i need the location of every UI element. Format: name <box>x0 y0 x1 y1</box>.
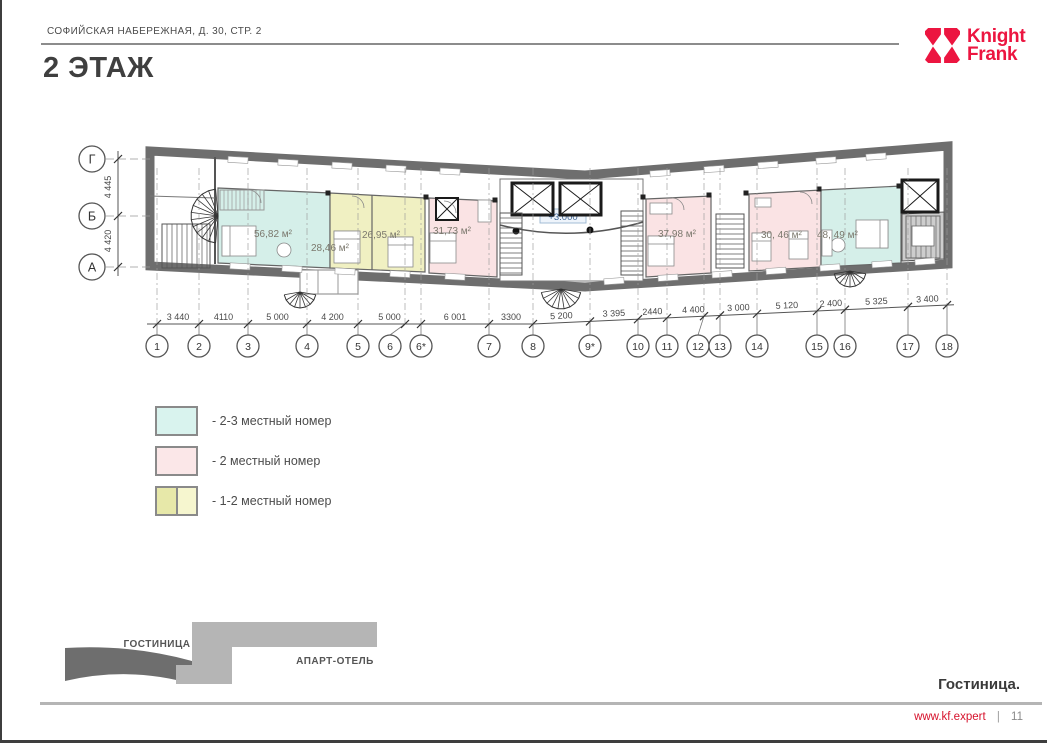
svg-text:17: 17 <box>902 341 914 353</box>
brochure-page: СОФИЙСКАЯ НАБЕРЕЖНАЯ, Д. 30, СТР. 2 2 ЭТ… <box>0 0 1047 743</box>
footer-website-link[interactable]: www.kf.expert <box>914 711 986 723</box>
svg-text:6: 6 <box>387 341 393 353</box>
dimension-label: 3 395 <box>602 308 625 319</box>
sitemap-apart-label: АПАРТ-ОТЕЛЬ <box>296 656 374 667</box>
dimension-label: 4 420 <box>103 230 113 253</box>
dimension-label: 3 000 <box>727 302 750 313</box>
dimension-label: 3 440 <box>167 312 190 322</box>
axis-bubble-13: 13 <box>709 335 731 357</box>
dimension-label: 5 200 <box>550 310 573 321</box>
axis-bubble-12: 12 <box>687 335 709 357</box>
legend-label-2-3: - 2-3 местный номер <box>212 414 331 428</box>
legend-swatch-2 <box>155 446 198 476</box>
svg-text:13: 13 <box>714 341 726 353</box>
axis-bubble-3: 3 <box>237 335 259 357</box>
axis-bubble-16: 16 <box>834 335 856 357</box>
axis-bubble-1: 1 <box>146 335 168 357</box>
svg-text:7: 7 <box>486 341 492 353</box>
svg-text:18: 18 <box>941 341 953 353</box>
axis-bubble-6*: 6* <box>410 335 432 357</box>
axis-bubble-Б: Б <box>79 203 105 229</box>
legend-swatch-2-3 <box>155 406 198 436</box>
footer-page-number: 11 <box>1011 711 1023 723</box>
svg-text:16: 16 <box>839 341 851 353</box>
axis-bubble-2: 2 <box>188 335 210 357</box>
room-area-label: 56,82 м² <box>254 229 293 240</box>
legend-item-1-2: - 1-2 местный номер <box>155 486 331 516</box>
room-area-label: 31,73 м² <box>433 226 472 237</box>
dimension-label: 4110 <box>214 312 233 322</box>
dimension-label: 4 400 <box>682 304 705 315</box>
page-caption: Гостиница. <box>938 676 1020 693</box>
svg-text:2: 2 <box>196 341 202 353</box>
footer-rule <box>40 702 1042 705</box>
axis-bubble-9*: 9* <box>579 335 601 357</box>
svg-text:5: 5 <box>355 341 361 353</box>
axis-bubble-Г: Г <box>79 146 105 172</box>
legend-item-2: - 2 местный номер <box>155 446 331 476</box>
legend: - 2-3 местный номер - 2 местный номер - … <box>155 406 331 526</box>
floor-plan: +3.000 1234566*789*1011121314151617183 4… <box>0 0 1047 743</box>
room-area-label: 26,95 м² <box>362 230 401 241</box>
dimension-label: 6 001 <box>444 312 467 322</box>
axis-bubble-10: 10 <box>627 335 649 357</box>
room-area-label: 48, 49 м² <box>817 230 858 241</box>
axis-bubble-А: А <box>79 254 105 280</box>
svg-text:Б: Б <box>88 210 96 224</box>
dimension-label: 5 120 <box>775 300 798 311</box>
svg-text:11: 11 <box>662 341 673 353</box>
svg-text:14: 14 <box>751 341 763 353</box>
axis-bubble-5: 5 <box>347 335 369 357</box>
footer-separator: | <box>997 711 1000 723</box>
dimension-label: 5 325 <box>865 296 888 307</box>
sitemap-hotel-shape <box>65 647 192 684</box>
svg-text:8: 8 <box>530 341 536 353</box>
svg-text:1: 1 <box>154 341 160 353</box>
axis-bubble-6: 6 <box>379 335 401 357</box>
svg-text:6*: 6* <box>416 341 426 353</box>
svg-text:12: 12 <box>692 341 704 353</box>
svg-text:3: 3 <box>245 341 251 353</box>
svg-text:4: 4 <box>304 341 310 353</box>
axis-bubble-4: 4 <box>296 335 318 357</box>
footer: www.kf.expert | 11 <box>914 711 1023 723</box>
axis-bubble-8: 8 <box>522 335 544 357</box>
axis-bubble-11: 11 <box>656 335 678 357</box>
dimension-label: 2440 <box>642 306 662 317</box>
axis-bubble-18: 18 <box>936 335 958 357</box>
legend-swatch-1-2 <box>155 486 198 516</box>
svg-text:10: 10 <box>632 341 644 353</box>
svg-text:Г: Г <box>89 153 96 167</box>
dimension-label: 3300 <box>501 312 521 322</box>
svg-text:9*: 9* <box>585 341 595 353</box>
legend-item-2-3: - 2-3 местный номер <box>155 406 331 436</box>
axis-bubble-14: 14 <box>746 335 768 357</box>
room-area-label: 28,46 м² <box>311 243 350 254</box>
dimension-label: 5 000 <box>378 312 401 322</box>
sitemap-hotel-label: ГОСТИНИЦА <box>123 639 190 650</box>
sitemap-apart-shape <box>176 622 377 684</box>
svg-text:А: А <box>88 261 97 275</box>
dimension-label: 4 200 <box>321 312 344 322</box>
dimension-label: 5 000 <box>266 312 289 322</box>
room-area-label: 37,98 м² <box>658 229 697 240</box>
svg-text:15: 15 <box>811 341 823 353</box>
dimension-label: 4 445 <box>103 176 113 199</box>
dimension-label: 3 400 <box>916 293 939 304</box>
legend-label-1-2: - 1-2 местный номер <box>212 494 331 508</box>
legend-label-2: - 2 местный номер <box>212 454 320 468</box>
dimension-label: 2 400 <box>819 298 842 309</box>
axis-bubble-7: 7 <box>478 335 500 357</box>
axis-bubble-15: 15 <box>806 335 828 357</box>
axis-bubble-17: 17 <box>897 335 919 357</box>
room-area-label: 30, 46 м² <box>761 230 802 241</box>
